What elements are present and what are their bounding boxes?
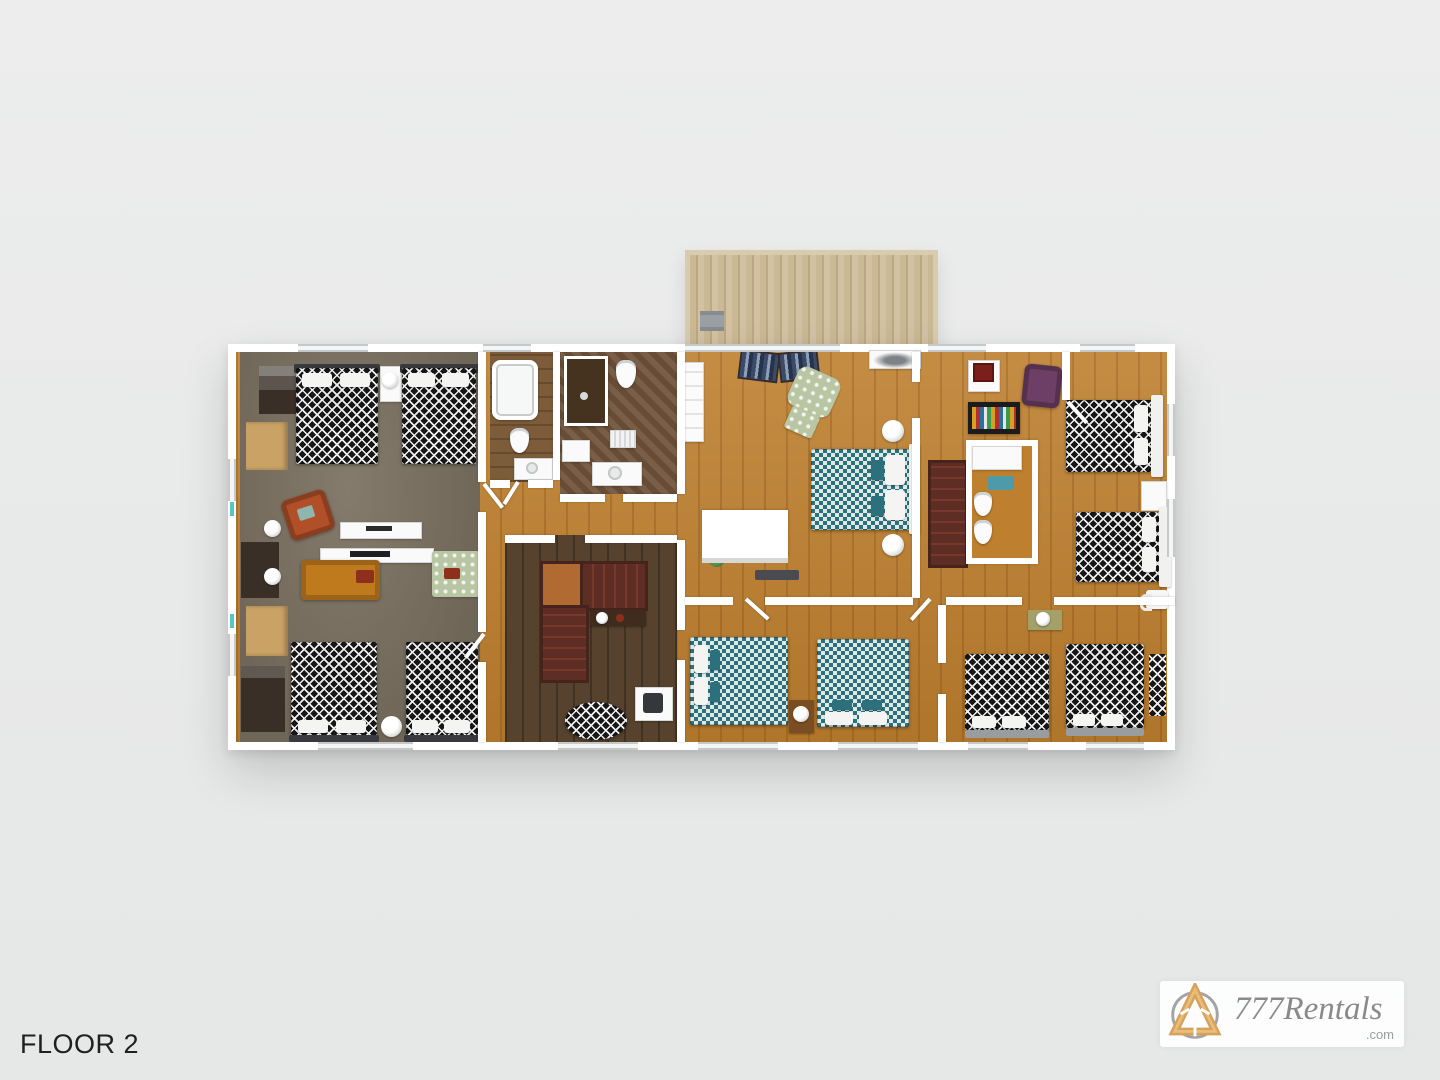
hamper-contents [643, 693, 663, 713]
window [928, 344, 986, 352]
window [698, 742, 778, 750]
toilet [974, 520, 992, 544]
accent-pillow-teal [710, 682, 720, 702]
interior-wall [677, 540, 685, 630]
floor-lamp [264, 520, 281, 537]
interior-wall [490, 480, 510, 488]
armchair-purple [1021, 363, 1063, 409]
accent-pillow-teal [871, 460, 884, 480]
pillow [444, 720, 470, 733]
desk-speaker-icon [596, 612, 608, 624]
window-marker-teal [230, 614, 234, 628]
pillow [1101, 714, 1123, 726]
window [1167, 404, 1175, 456]
window [838, 742, 918, 750]
desk-red-item [616, 614, 624, 622]
accent-pillow-teal [832, 700, 852, 710]
pillow [859, 712, 887, 725]
logo-brand: 777Rentals [1234, 991, 1382, 1028]
logo-triangle-icon [1164, 983, 1226, 1050]
interior-wall [685, 597, 733, 605]
side-table-round [381, 716, 402, 737]
book-spines [972, 407, 1016, 429]
interior-wall [912, 352, 920, 382]
closet-door-tan [246, 606, 288, 656]
window [318, 742, 413, 750]
bath-mat-teal [988, 476, 1014, 490]
pillow [825, 712, 853, 725]
logo: 777Rentals .com [1160, 981, 1404, 1047]
sink-basin [526, 462, 538, 474]
interior-wall [765, 597, 913, 605]
window-marker-teal [230, 502, 234, 516]
accent-pillow-teal [710, 650, 720, 670]
lounge-chair [737, 349, 780, 384]
window [1086, 742, 1144, 750]
floor-label: FLOOR 2 [20, 1029, 139, 1060]
pillow [1073, 714, 1095, 726]
wardrobe-white [684, 362, 704, 442]
staircase-lower-flight [540, 605, 589, 683]
table-lamp [382, 372, 398, 388]
table-decor [366, 526, 392, 531]
nightstand-lamp [882, 420, 904, 442]
rug-pillow-red [444, 568, 460, 579]
window [1167, 499, 1175, 557]
table-lamp [793, 706, 809, 722]
pillow [1142, 547, 1156, 572]
deck-vent-icon [700, 311, 724, 331]
vanity-sink [562, 440, 590, 462]
door-mat [755, 570, 799, 580]
accent-pillow-teal [871, 496, 884, 516]
sink-basin [608, 466, 622, 480]
stairwell-opening [702, 510, 788, 558]
bed-bench-gray [965, 730, 1049, 738]
pillow [408, 373, 435, 387]
bed-headboard [289, 735, 379, 742]
interior-wall [560, 494, 605, 502]
interior-wall [478, 662, 486, 742]
stairwell-railing [702, 558, 788, 563]
pillow [972, 716, 996, 728]
bookshelf [968, 402, 1020, 434]
scene: FLOOR 2 777Rentals .com [0, 0, 1440, 1080]
shower [564, 356, 608, 426]
arcade-screen [973, 363, 994, 382]
logo-tld: .com [1366, 1027, 1394, 1042]
bathtub [492, 360, 538, 420]
pillow [412, 720, 438, 733]
interior-wall [528, 480, 553, 488]
pillow [1142, 517, 1156, 542]
pillow [298, 720, 328, 733]
pillow [694, 645, 708, 673]
water-closet-room [966, 440, 1038, 564]
pillow [1134, 438, 1148, 465]
closet-dark [259, 366, 297, 414]
pillow [694, 677, 708, 705]
floor-plan [228, 344, 1175, 750]
window [685, 344, 840, 352]
pillow [336, 720, 366, 733]
shower-drain-icon [580, 392, 588, 400]
runner-rug [1149, 654, 1166, 716]
window [298, 344, 368, 352]
radiator [610, 430, 636, 448]
deck [685, 250, 938, 355]
pillow [885, 490, 905, 520]
interior-wall [677, 660, 685, 742]
interior-wall [938, 694, 946, 742]
interior-wall [553, 352, 560, 480]
interior-wall [478, 352, 486, 482]
pillow [1134, 405, 1148, 432]
closet-dark [241, 666, 285, 732]
interior-wall [912, 418, 920, 598]
pillow [1002, 716, 1026, 728]
interior-wall [505, 535, 555, 543]
pillow [340, 373, 370, 387]
pillow [442, 373, 469, 387]
interior-wall [585, 535, 677, 543]
closet-door-tan [246, 422, 288, 470]
interior-wall [938, 605, 946, 663]
interior-wall [478, 512, 486, 632]
window [228, 634, 236, 676]
wc-counter [972, 446, 1022, 470]
window [1080, 344, 1135, 352]
window [558, 742, 638, 750]
toilet [974, 492, 992, 516]
bed-frame-white [1151, 395, 1163, 477]
sofa-cushion-red [356, 570, 374, 583]
interior-wall [1054, 597, 1175, 605]
interior-wall [623, 494, 677, 502]
window [483, 344, 531, 352]
floor-cushion-pile [565, 702, 627, 740]
pillow [885, 455, 905, 485]
cabinet-lamp [1036, 612, 1050, 626]
tv-icon [350, 551, 390, 557]
interior-wall [946, 597, 1022, 605]
window [968, 742, 1028, 750]
staircase-down [928, 460, 968, 568]
interior-wall [677, 352, 685, 494]
floor-lamp [264, 568, 281, 585]
bed-headboard [404, 735, 480, 742]
bed-bench-gray [1066, 728, 1144, 736]
interior-wall [1062, 352, 1070, 400]
pillow [302, 373, 332, 387]
arcade-cabinet [968, 360, 1000, 392]
nightstand-lamp [882, 534, 904, 556]
window [228, 459, 236, 501]
accent-pillow-teal [862, 700, 882, 710]
staircase-upper-flight [580, 561, 648, 611]
